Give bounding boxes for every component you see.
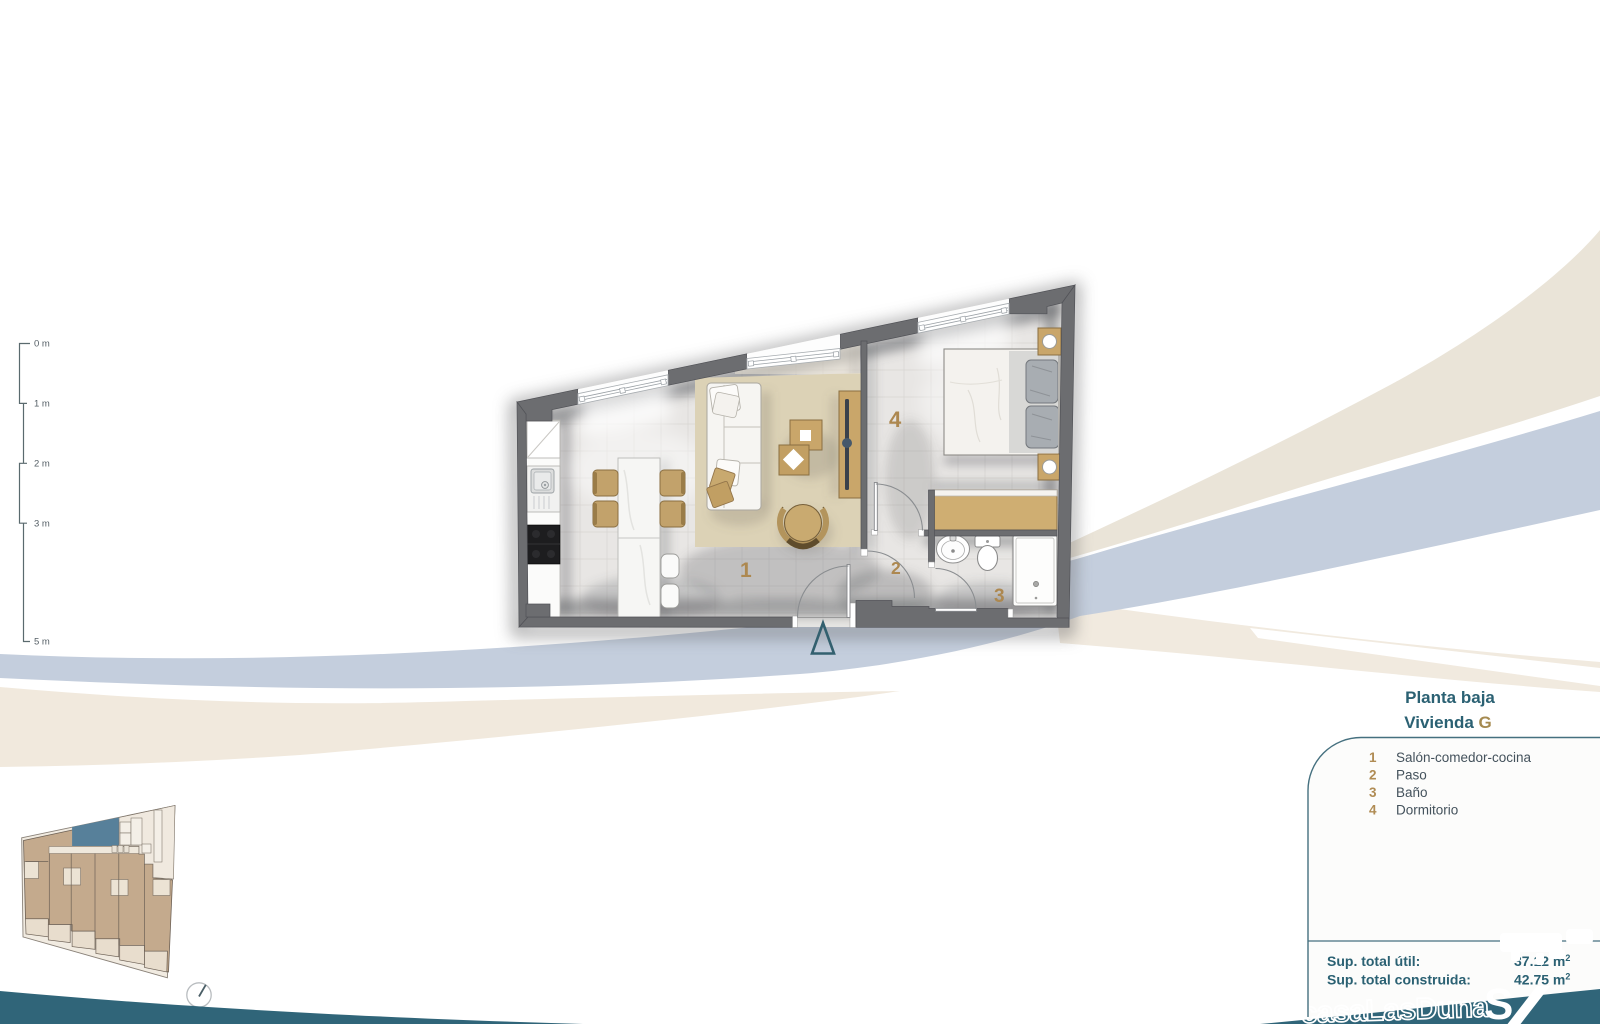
svg-text:0 m: 0 m bbox=[34, 339, 50, 350]
svg-text:Dormitorio: Dormitorio bbox=[1396, 803, 1458, 818]
svg-text:1 m: 1 m bbox=[34, 399, 50, 410]
svg-text:Paso: Paso bbox=[1396, 768, 1427, 783]
svg-text:5 m: 5 m bbox=[34, 637, 50, 648]
svg-text:S: S bbox=[1484, 980, 1513, 1024]
svg-text:3: 3 bbox=[994, 586, 1005, 607]
svg-text:4: 4 bbox=[1369, 803, 1377, 818]
svg-text:Planta baja: Planta baja bbox=[1405, 688, 1495, 707]
svg-text:4: 4 bbox=[889, 407, 902, 432]
svg-text:42.75 m2: 42.75 m2 bbox=[1514, 972, 1570, 988]
svg-text:3: 3 bbox=[1369, 785, 1377, 800]
svg-text:1: 1 bbox=[740, 559, 752, 582]
svg-text:Salón-comedor-cocina: Salón-comedor-cocina bbox=[1396, 750, 1532, 765]
svg-text:casaLasDuna: casaLasDuna bbox=[1300, 990, 1490, 1024]
svg-text:1: 1 bbox=[1369, 750, 1377, 765]
svg-text:2 m: 2 m bbox=[34, 459, 50, 470]
svg-text:Vivienda G: Vivienda G bbox=[1404, 713, 1492, 732]
svg-text:2: 2 bbox=[1369, 768, 1377, 783]
svg-text:3 m: 3 m bbox=[34, 519, 50, 530]
svg-text:Sup. total útil:: Sup. total útil: bbox=[1327, 953, 1420, 969]
svg-text:Baño: Baño bbox=[1396, 785, 1428, 800]
svg-text:2: 2 bbox=[891, 558, 901, 578]
svg-text:Sup. total construida:: Sup. total construida: bbox=[1327, 972, 1471, 988]
